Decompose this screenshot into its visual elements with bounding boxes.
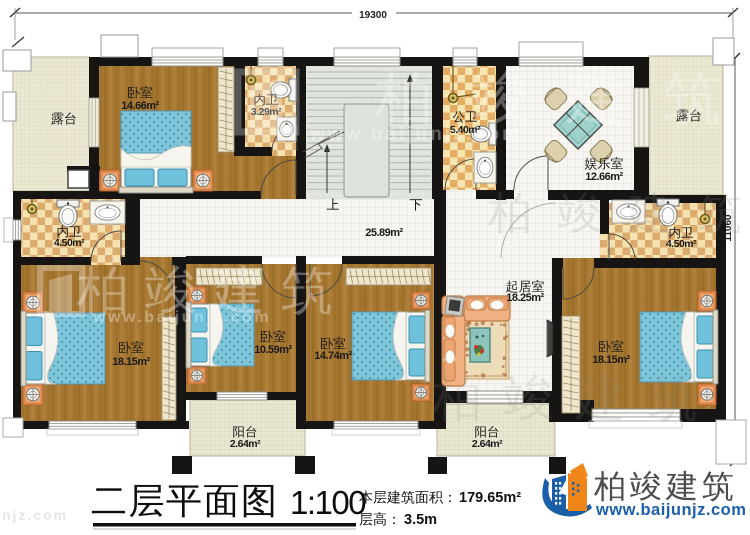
svg-text:www.baijunjz.com: www.baijunjz.com: [309, 124, 522, 145]
svg-text:1:100: 1:100: [290, 484, 366, 521]
svg-text:4.50m²: 4.50m²: [666, 238, 697, 250]
svg-text:14.74m²: 14.74m²: [314, 350, 352, 362]
svg-text:14.66m²: 14.66m²: [121, 100, 159, 112]
svg-text:18.25m²: 18.25m²: [506, 292, 544, 304]
svg-text:2.64m²: 2.64m²: [230, 438, 261, 450]
svg-text:2.64m²: 2.64m²: [472, 438, 503, 450]
svg-text:25.89m²: 25.89m²: [365, 227, 403, 239]
svg-text:www.baijunjz.com: www.baijunjz.com: [595, 501, 746, 519]
svg-text:3.5m: 3.5m: [404, 512, 437, 528]
svg-text:www.baijunjz.com: www.baijunjz.com: [92, 309, 271, 326]
svg-text:19300: 19300: [359, 10, 387, 21]
svg-text:179.65m²: 179.65m²: [459, 490, 521, 506]
svg-text:18.15m²: 18.15m²: [592, 354, 630, 366]
svg-text:njz.com: njz.com: [2, 507, 68, 523]
svg-text:10.59m²: 10.59m²: [254, 344, 292, 356]
svg-text:18.15m²: 18.15m²: [112, 356, 150, 368]
svg-text:12.66m²: 12.66m²: [585, 171, 623, 183]
svg-text:4.50m²: 4.50m²: [54, 237, 85, 249]
